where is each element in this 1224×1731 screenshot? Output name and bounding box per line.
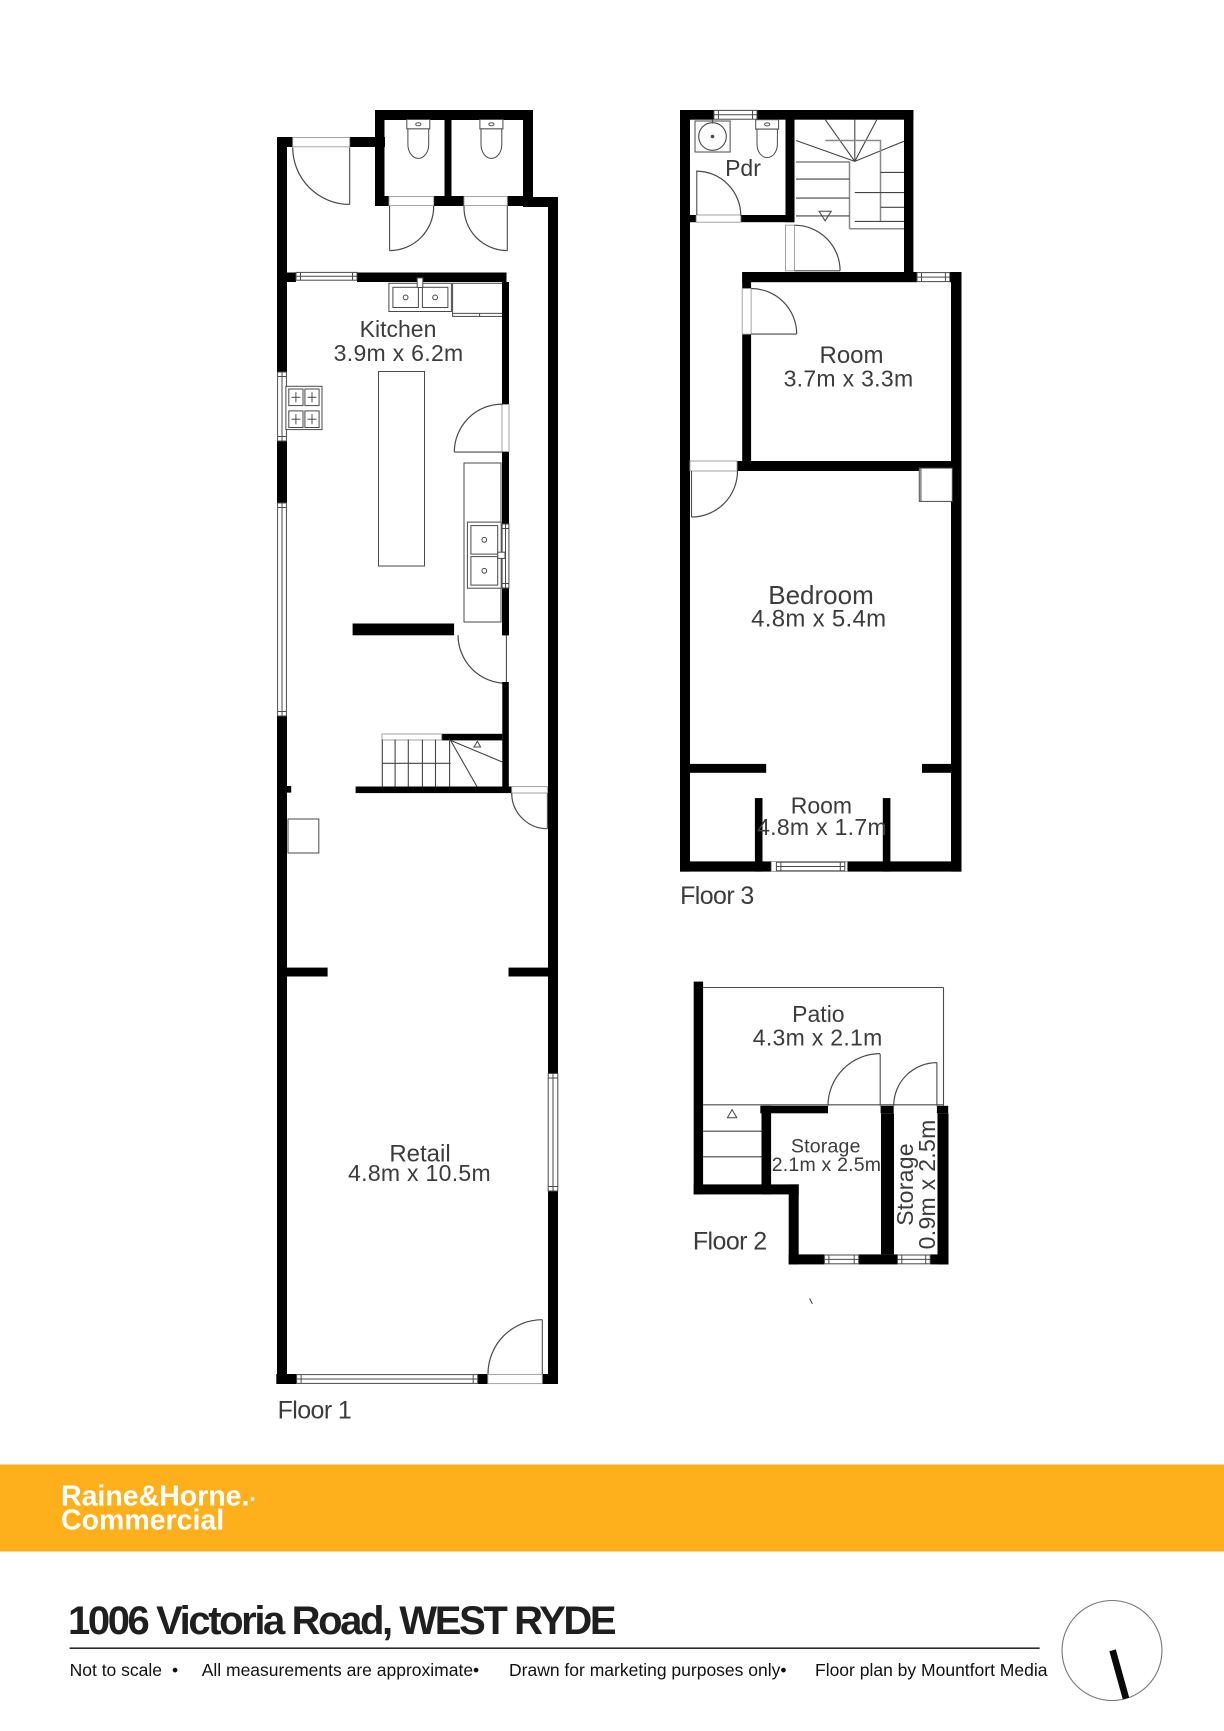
svg-text:1006 Victoria Road, WEST RYDE: 1006 Victoria Road, WEST RYDE (68, 1599, 616, 1643)
svg-text:Drawn for marketing purposes o: Drawn for marketing purposes only• (509, 1660, 787, 1680)
svg-text:Commercial: Commercial (61, 1505, 224, 1537)
svg-text:2.1m x 2.5m: 2.1m x 2.5m (772, 1154, 882, 1176)
svg-text:Floor plan by Mountfort Media: Floor plan by Mountfort Media (815, 1660, 1048, 1680)
svg-text:Pdr: Pdr (725, 155, 761, 181)
svg-text:4.3m x 2.1m: 4.3m x 2.1m (753, 1025, 883, 1051)
svg-text:0.9m x 2.5m: 0.9m x 2.5m (914, 1119, 940, 1249)
svg-text:Floor 1: Floor 1 (278, 1397, 352, 1425)
svg-text:3.7m x 3.3m: 3.7m x 3.3m (784, 366, 914, 392)
svg-text:Not to scale: Not to scale (70, 1660, 162, 1680)
svg-text:4.8m x 1.7m: 4.8m x 1.7m (757, 814, 887, 840)
svg-text:Floor 2: Floor 2 (693, 1228, 767, 1256)
svg-text:Kitchen: Kitchen (360, 316, 437, 342)
svg-text:3.9m x 6.2m: 3.9m x 6.2m (334, 340, 464, 366)
svg-text:•: • (172, 1660, 178, 1680)
svg-text:All measurements are approxima: All measurements are approximate• (202, 1660, 480, 1680)
svg-text:Patio: Patio (792, 1001, 844, 1027)
svg-text:Floor 3: Floor 3 (680, 882, 754, 910)
svg-text:4.8m x 10.5m: 4.8m x 10.5m (348, 1160, 491, 1186)
svg-text:4.8m x 5.4m: 4.8m x 5.4m (751, 606, 886, 633)
